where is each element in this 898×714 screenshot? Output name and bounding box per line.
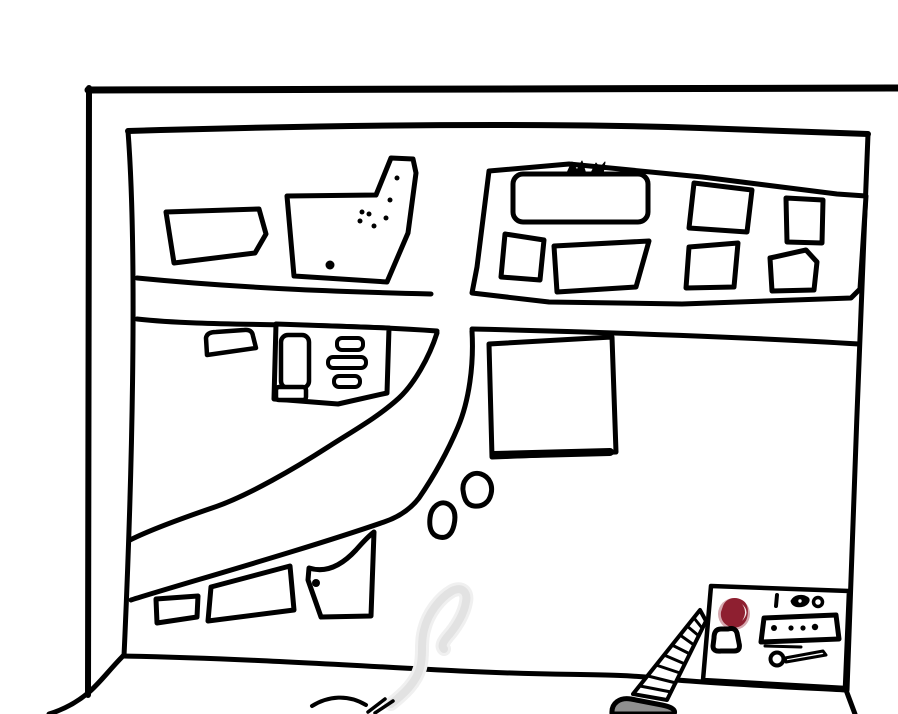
building-b-dot <box>388 198 393 203</box>
map-board-top-edge <box>128 125 868 134</box>
building-b-dot <box>372 224 377 229</box>
indicator-one-icon <box>776 595 777 606</box>
building-block-c7 <box>770 250 817 291</box>
building-block-g1 <box>156 596 198 623</box>
slider-knob[interactable] <box>771 653 784 666</box>
building-b-dot <box>395 176 400 181</box>
creature-back-line <box>312 698 366 706</box>
indicator-circle-icon <box>814 598 823 607</box>
slot-dot <box>800 625 805 630</box>
building-e-bar <box>328 357 366 368</box>
building-block-f-square <box>489 337 616 457</box>
smoke-wisp-outer <box>391 589 466 704</box>
wall-top-edge <box>88 88 898 90</box>
wall-left-edge <box>88 88 89 695</box>
building-b-dot <box>360 210 365 215</box>
building-block-c4 <box>501 234 544 280</box>
slot-dot <box>771 625 777 631</box>
slot-shadow-line <box>765 646 801 647</box>
building-b-dot <box>367 212 372 217</box>
building-block-c2 <box>689 183 752 232</box>
white-button[interactable] <box>713 629 739 652</box>
slot-dot <box>812 624 818 630</box>
slot-dot <box>788 625 793 630</box>
building-b-big-dot <box>326 261 335 270</box>
sketch-scene <box>0 0 898 714</box>
building-b-dot <box>384 216 389 221</box>
building-e-bar <box>334 376 360 387</box>
building-b-dot <box>358 219 363 224</box>
building-block-c3 <box>786 198 823 243</box>
map-blob <box>463 473 492 506</box>
building-e-bar <box>337 338 363 350</box>
building-block-a <box>166 209 266 263</box>
eye-icon-pupil <box>798 599 801 602</box>
building-block-d <box>206 330 256 355</box>
building-block-c6 <box>686 243 738 288</box>
building-block-c5 <box>554 241 649 292</box>
building-block-c1 <box>513 174 648 222</box>
scene-svg <box>0 0 898 714</box>
building-f-thick-base <box>494 452 610 455</box>
building-e-cabinet-base <box>276 387 306 400</box>
building-g3-dot <box>312 579 320 587</box>
floor-right-corner <box>846 690 855 714</box>
map-blob <box>430 503 455 538</box>
building-e-cabinet <box>281 335 309 388</box>
map-board-left-edge <box>124 131 133 656</box>
